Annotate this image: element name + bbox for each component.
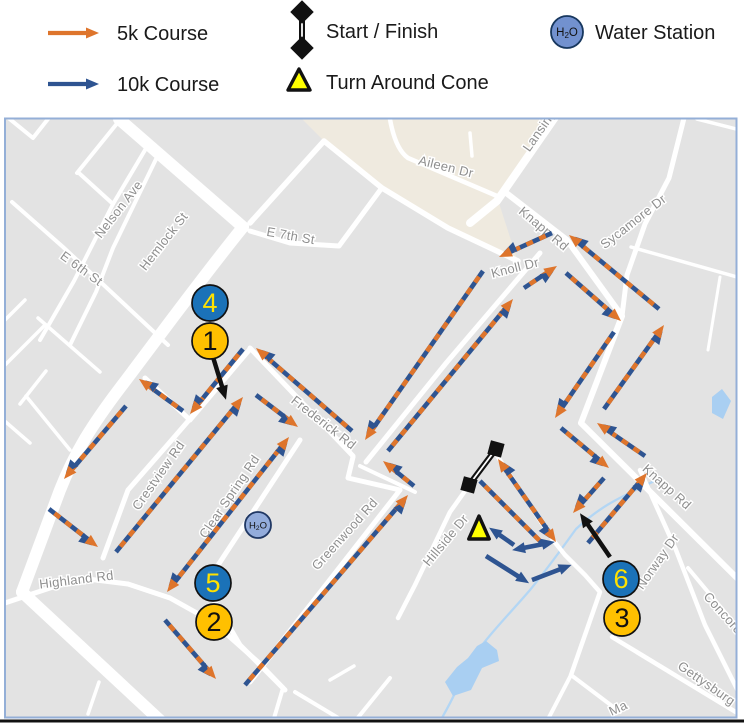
svg-text:2: 2 bbox=[206, 607, 221, 637]
svg-text:3: 3 bbox=[614, 603, 629, 633]
svg-text:Water Station: Water Station bbox=[595, 22, 715, 44]
svg-text:6: 6 bbox=[613, 564, 628, 594]
svg-text:4: 4 bbox=[202, 288, 217, 318]
svg-text:5k Course: 5k Course bbox=[117, 23, 208, 45]
svg-text:Turn Around Cone: Turn Around Cone bbox=[326, 72, 489, 94]
svg-text:1: 1 bbox=[202, 326, 217, 356]
svg-text:5: 5 bbox=[205, 568, 220, 598]
svg-text:Start / Finish: Start / Finish bbox=[326, 21, 438, 43]
svg-text:10k Course: 10k Course bbox=[117, 74, 219, 96]
